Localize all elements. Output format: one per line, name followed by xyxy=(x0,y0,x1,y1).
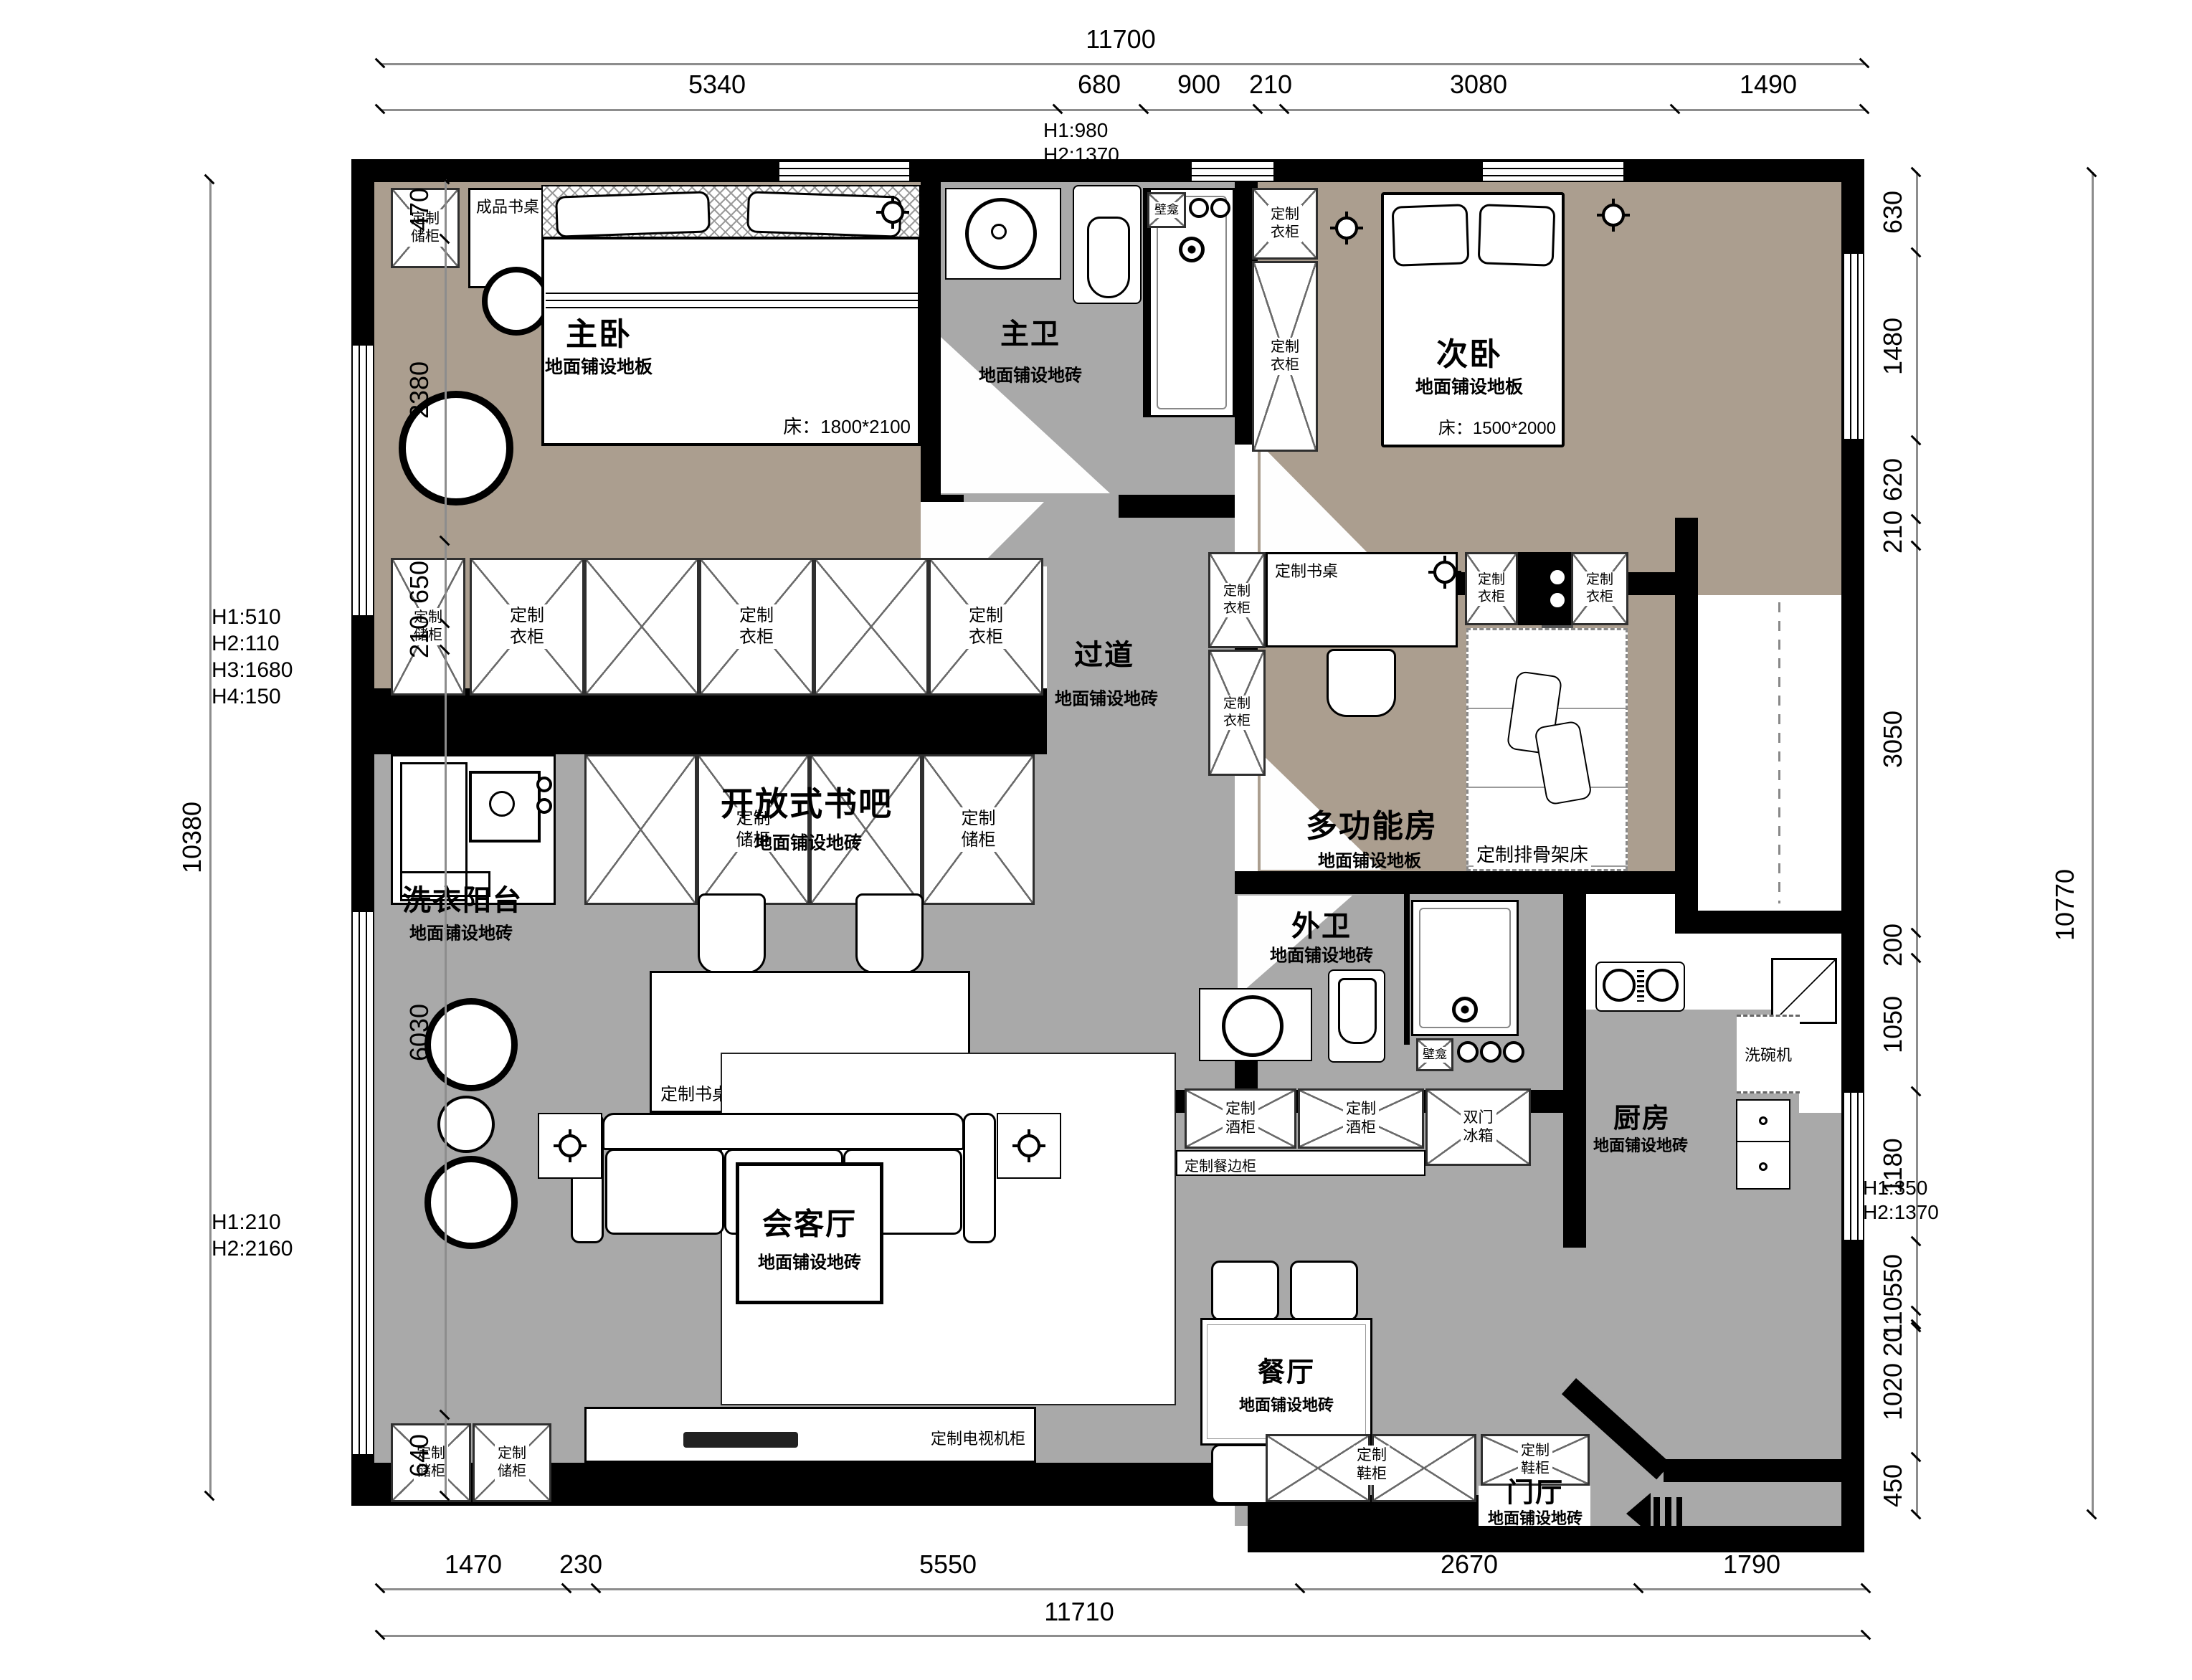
balcony-chair xyxy=(424,998,518,1091)
room-floor-bookbar: 地面铺设地砖 xyxy=(754,829,862,855)
dim-top-overall: 11700 xyxy=(1086,24,1155,54)
wall-bath-bottom-right xyxy=(1119,495,1235,518)
dishwasher-slot: 洗碗机 xyxy=(1737,1015,1800,1093)
window-bath-top xyxy=(1190,162,1275,181)
room-title-laundry: 洗衣阳台 xyxy=(402,877,523,919)
dim-label: 5340 xyxy=(688,70,746,100)
dim-label: 5550 xyxy=(919,1550,977,1580)
room-floor-foyer: 地面铺设地砖 xyxy=(1488,1506,1583,1529)
cabinet-wardrobe: 定制 衣柜 xyxy=(1252,188,1318,260)
wardrobe-knob-icon xyxy=(1548,568,1567,587)
drain-icon xyxy=(991,224,1007,239)
room-floor-corridor: 地面铺设地砖 xyxy=(1055,685,1158,710)
toilet-bowl xyxy=(1087,217,1130,298)
cabinet-label: 定制 衣柜 xyxy=(1268,205,1302,242)
shower-head-icon xyxy=(1452,997,1478,1022)
sink-basin-icon xyxy=(1222,995,1284,1057)
cabinet-label: 定制 衣柜 xyxy=(1268,338,1302,375)
sideboard-label: 定制餐边柜 xyxy=(1185,1154,1256,1175)
room-title-kitchen: 厨房 xyxy=(1613,1096,1671,1136)
wall-kitchen-bottom xyxy=(1664,1459,1864,1482)
cabinet-storage xyxy=(584,754,697,905)
dim-label: 6030 xyxy=(404,1004,435,1061)
tv-cabinet: 定制电视机柜 xyxy=(584,1407,1036,1463)
dim-left-overall: 10380 xyxy=(177,802,207,873)
dim-line xyxy=(380,1635,1866,1637)
pillow xyxy=(1534,720,1593,805)
wall-bottom-right xyxy=(1276,1526,1864,1552)
dim-note-left-1: H1:510 H2:110 H3:1680 H4:150 xyxy=(212,604,293,710)
room-title-master: 主卧 xyxy=(566,308,632,354)
toilet-icon xyxy=(1328,969,1385,1063)
cabinet-wardrobe: 定制 衣柜 xyxy=(699,558,814,696)
dim-label: 470 xyxy=(404,188,435,231)
cabinet-label: 定制 酒柜 xyxy=(1223,1099,1258,1139)
dim-label: 1470 xyxy=(445,1550,502,1580)
dim-note-right: H1:350 H2:1370 xyxy=(1863,1176,1939,1225)
dim-label: 640 xyxy=(404,1434,435,1477)
wall-master-bath-divider xyxy=(921,159,941,518)
wall-kitchen-left xyxy=(1563,894,1586,1248)
dim-right-overall: 10770 xyxy=(2050,869,2080,941)
niche-label: 壁龛 xyxy=(1422,1047,1448,1062)
dim-label: 3050 xyxy=(1878,711,1908,768)
sofa-seat xyxy=(605,1149,724,1235)
multi-desk-chair xyxy=(1327,649,1396,717)
pillow xyxy=(1478,204,1556,267)
dishwasher-label: 洗碗机 xyxy=(1745,1043,1792,1066)
dim-line xyxy=(209,179,212,1496)
wall-bay-left xyxy=(1675,518,1698,934)
tv-cabinet-label: 定制电视机柜 xyxy=(931,1426,1025,1449)
cabinet-label: 定制 衣柜 xyxy=(1223,583,1251,617)
niche-label: 壁龛 xyxy=(1154,202,1180,217)
room-floor-master: 地面铺设地板 xyxy=(545,353,653,379)
curtain-dashed-line xyxy=(1778,602,1780,903)
cabinet-label: 定制 储柜 xyxy=(495,1444,529,1481)
dim-note-top: H1:980 H2:1370 xyxy=(1043,118,1119,167)
wall-multi-bottom xyxy=(1235,871,1675,894)
dim-line xyxy=(380,109,1866,111)
dining-chair xyxy=(1290,1261,1358,1321)
burner-icon xyxy=(1646,969,1679,1002)
washer-door-icon xyxy=(489,791,515,817)
cabinet-label: 定制 储柜 xyxy=(959,807,999,852)
tv-icon xyxy=(683,1432,798,1448)
ceiling-light-icon xyxy=(1012,1129,1045,1162)
diagonal-line xyxy=(1773,960,1835,1022)
cabinet-storage: 定制 储柜 xyxy=(473,1423,551,1502)
master-desk-chair xyxy=(482,267,551,336)
cabinet-label: 定制 衣柜 xyxy=(1223,696,1251,730)
wardrobe-knob-icon xyxy=(1548,591,1567,609)
second-bed: 床：1500*2000 xyxy=(1381,192,1565,447)
bed-size-label: 床：1800*2100 xyxy=(783,412,911,439)
cabinet-wine: 定制 酒柜 xyxy=(1185,1088,1296,1149)
room-title-living: 会客厅 xyxy=(762,1200,857,1244)
cabinet-label: 定制 衣柜 xyxy=(966,604,1006,649)
dim-label: 1480 xyxy=(1878,318,1908,375)
room-title-corridor: 过道 xyxy=(1074,632,1134,673)
window-kitchen-right xyxy=(1844,1091,1863,1241)
balcony-chair xyxy=(424,1156,518,1249)
ceiling-light-icon xyxy=(1597,199,1630,232)
cabinet-wardrobe: 定制 衣柜 xyxy=(929,558,1043,696)
dim-line xyxy=(380,1588,1866,1590)
ceiling-light-icon xyxy=(554,1129,587,1162)
towel-ring-icon xyxy=(1210,198,1230,218)
room-floor-second: 地面铺设地板 xyxy=(1415,373,1523,399)
toilet-icon xyxy=(1073,185,1142,304)
window-laundry-left xyxy=(353,911,373,1456)
sofa-arm xyxy=(963,1113,996,1243)
bath-sink-counter xyxy=(945,188,1061,280)
dim-label: 550 xyxy=(1878,1254,1908,1297)
desk-label: 成品书桌 xyxy=(476,194,539,217)
shower-head-icon xyxy=(1179,237,1205,262)
dim-label: 620 xyxy=(1878,458,1908,501)
bed-fold-lines xyxy=(546,287,919,308)
knob-icon xyxy=(536,777,552,792)
window-master-top xyxy=(778,162,911,181)
floor-plan: 定制 储柜 成品书桌 床：1800*2100 主卧 地面铺设地板 定制 储柜 定… xyxy=(0,0,2192,1680)
dining-chair xyxy=(1211,1261,1279,1321)
dim-label: 900 xyxy=(1177,70,1220,100)
window-master-left xyxy=(353,344,373,617)
room-floor-laundry: 地面铺设地砖 xyxy=(409,919,513,944)
cabinet-wine: 定制 酒柜 xyxy=(1298,1088,1424,1149)
niche: 壁龛 xyxy=(1416,1038,1453,1071)
towel-ring-icon xyxy=(1457,1041,1479,1063)
toilet-bowl xyxy=(1338,978,1377,1044)
pillow xyxy=(555,191,711,237)
dim-label: 2380 xyxy=(404,361,435,419)
room-title-bookbar: 开放式书吧 xyxy=(721,778,893,825)
room-floor-dining: 地面铺设地砖 xyxy=(1239,1392,1334,1415)
bookbar-chair xyxy=(855,893,924,974)
window-second-bay xyxy=(1844,252,1863,440)
cabinet-label: 定制 衣柜 xyxy=(1585,571,1614,606)
dim-label: 630 xyxy=(1878,191,1908,234)
guest-sink-counter xyxy=(1199,988,1312,1061)
burner-icon xyxy=(1603,969,1636,1002)
room-floor-guest-bath: 地面铺设地砖 xyxy=(1270,941,1373,967)
wall-wardrobe-backdrop xyxy=(374,688,1047,754)
dim-label: 450 xyxy=(1878,1464,1908,1507)
dim-label: 210 xyxy=(1249,70,1292,100)
ceiling-light-icon xyxy=(1428,556,1461,589)
fridge: 双门 冰箱 xyxy=(1425,1088,1531,1166)
towel-ring-icon xyxy=(1503,1041,1524,1063)
cabinet-wardrobe: 定制 衣柜 xyxy=(1571,552,1628,625)
cabinet-label: 定制 衣柜 xyxy=(736,604,777,649)
cabinet-label: 定制 酒柜 xyxy=(1343,1099,1379,1139)
stove xyxy=(1595,962,1685,1012)
cabinet-label: 定制 衣柜 xyxy=(507,604,547,649)
knob-icon xyxy=(1759,1162,1768,1171)
ceiling-light-icon xyxy=(1330,212,1363,245)
desk-label: 定制书桌 xyxy=(660,1080,729,1105)
wall-guest-shower-divider xyxy=(1404,894,1410,1045)
dim-label: 20 xyxy=(1878,1328,1908,1357)
dim-label: 680 xyxy=(1078,70,1121,100)
room-title-second: 次卧 xyxy=(1436,328,1502,374)
niche: 壁龛 xyxy=(1147,192,1186,228)
dim-bottom-overall: 11710 xyxy=(1044,1597,1114,1627)
room-title-master-bath: 主卫 xyxy=(1000,310,1061,352)
knob-icon xyxy=(536,798,552,814)
room-title-multi: 多功能房 xyxy=(1306,800,1438,846)
grill-icon xyxy=(1637,970,1644,1002)
towel-ring-icon xyxy=(1480,1041,1501,1063)
room-title-guest-bath: 外卫 xyxy=(1291,903,1352,944)
room-floor-master-bath: 地面铺设地砖 xyxy=(979,361,1082,386)
window-second-top xyxy=(1481,162,1625,181)
cabinet-wardrobe: 定制 衣柜 xyxy=(1252,261,1318,452)
room-floor-living: 地面铺设地砖 xyxy=(758,1248,861,1273)
dim-label: 1790 xyxy=(1723,1550,1780,1580)
wall-bay-bottom xyxy=(1675,911,1841,934)
bed-size-label: 床：1500*2000 xyxy=(1438,414,1556,439)
dim-note-left-2: H1:210 H2:2160 xyxy=(212,1209,293,1262)
dim-label: 210 xyxy=(404,615,435,658)
pillow xyxy=(1392,204,1470,267)
dim-line xyxy=(380,63,1864,65)
sideboard: 定制餐边柜 xyxy=(1176,1150,1425,1176)
dim-label: 3080 xyxy=(1450,70,1507,100)
cabinet-label: 定制 衣柜 xyxy=(1477,571,1506,606)
room-floor-kitchen: 地面铺设地砖 xyxy=(1593,1133,1688,1156)
dim-label: 200 xyxy=(1878,924,1908,967)
dim-label: 2670 xyxy=(1441,1550,1498,1580)
dim-line xyxy=(2092,172,2094,1514)
cabinet-divider xyxy=(1737,1141,1789,1142)
cabinet-wardrobe: 定制 衣柜 xyxy=(1465,552,1518,625)
dim-label: 1490 xyxy=(1740,70,1797,100)
cabinet-wardrobe: 定制 衣柜 xyxy=(470,558,584,696)
fridge-label: 双门 冰箱 xyxy=(1461,1108,1496,1147)
room-title-dining: 餐厅 xyxy=(1258,1350,1315,1390)
dim-label: 1020 xyxy=(1878,1363,1908,1420)
dim-line xyxy=(445,179,447,1496)
wall-multi-wardrobe-divider xyxy=(1518,552,1571,625)
room-floor-multi: 地面铺设地板 xyxy=(1318,847,1421,872)
shoe-cabinet-label: 定制 鞋柜 xyxy=(1354,1446,1390,1485)
sofa-back xyxy=(602,1113,964,1150)
cabinet-wardrobe: 定制 衣柜 xyxy=(1208,552,1266,648)
dim-label: 230 xyxy=(559,1550,602,1580)
knob-icon xyxy=(1759,1116,1768,1125)
ceiling-light-icon xyxy=(876,196,909,229)
cabinet-storage: 定制 储柜 xyxy=(922,754,1035,905)
dim-label: 210 xyxy=(1878,511,1908,554)
slat-bed-label: 定制排骨架床 xyxy=(1474,840,1591,867)
towel-ring-icon xyxy=(1189,198,1209,218)
bookbar-chair xyxy=(698,893,766,974)
cabinet-wardrobe: 定制 衣柜 xyxy=(1208,650,1266,776)
slat-bed xyxy=(1466,628,1628,871)
cabinet-wardrobe xyxy=(584,558,699,696)
cabinet-wardrobe xyxy=(814,558,929,696)
dim-label: 650 xyxy=(404,561,435,604)
room-title-foyer: 门厅 xyxy=(1507,1471,1564,1510)
entry-arrow-bars-icon xyxy=(1654,1497,1682,1530)
desk-label: 定制书桌 xyxy=(1275,559,1338,582)
dim-label: 1050 xyxy=(1878,996,1908,1053)
kitchen-cabinet xyxy=(1736,1099,1790,1190)
